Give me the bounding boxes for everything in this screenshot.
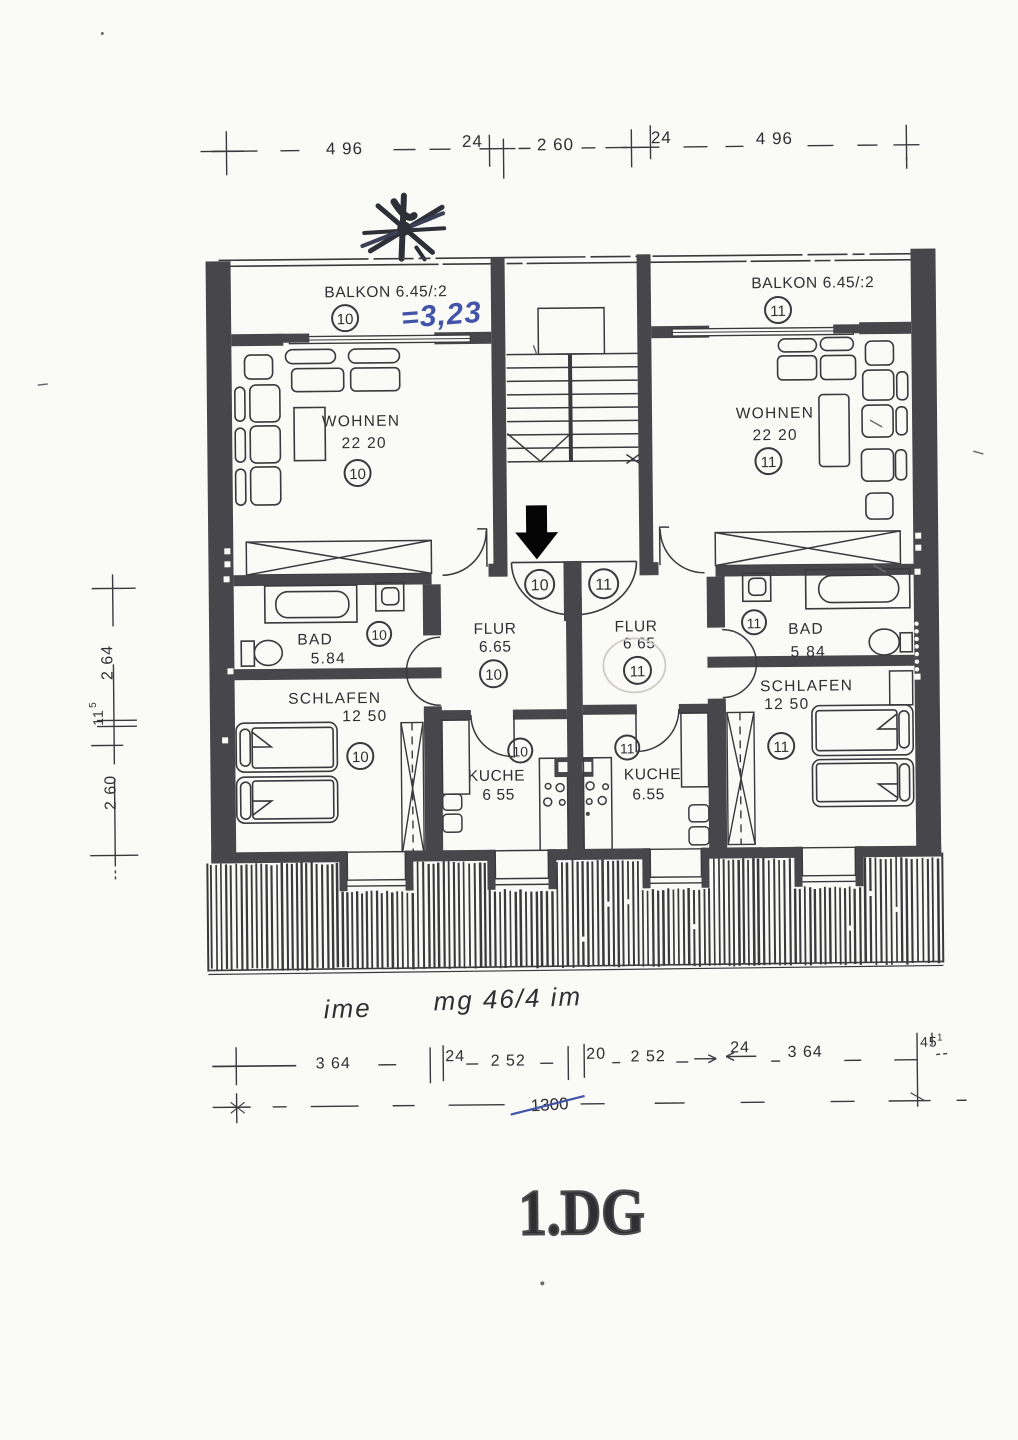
svg-text:mg 46/4 im: mg 46/4 im	[433, 981, 583, 1016]
svg-text:SCHLAFEN: SCHLAFEN	[760, 677, 853, 695]
svg-text:10: 10	[352, 749, 369, 766]
svg-text:SCHLAFEN: SCHLAFEN	[288, 690, 381, 708]
svg-text:BALKON 6.45/:2: BALKON 6.45/:2	[324, 283, 447, 301]
svg-text:FLUR: FLUR	[615, 618, 658, 635]
svg-text:2 64: 2 64	[99, 645, 116, 680]
svg-text:FLUR: FLUR	[474, 621, 517, 638]
svg-text:ime: ime	[323, 993, 372, 1025]
svg-text:2 60: 2 60	[537, 135, 574, 154]
svg-text:10: 10	[371, 627, 387, 643]
svg-text:11: 11	[747, 615, 762, 631]
svg-text:=3,23: =3,23	[400, 296, 483, 335]
svg-text:10: 10	[485, 667, 502, 684]
svg-text:22 20: 22 20	[753, 427, 798, 444]
svg-text:5: 5	[88, 701, 99, 708]
svg-text:2 52: 2 52	[491, 1052, 526, 1069]
svg-text:24: 24	[462, 132, 483, 151]
svg-text:10: 10	[531, 577, 549, 594]
svg-text:6.65: 6.65	[479, 639, 512, 656]
svg-text:11: 11	[90, 709, 106, 726]
svg-text:KUCHE: KUCHE	[624, 766, 681, 784]
svg-text:11: 11	[595, 577, 612, 594]
svg-text:1: 1	[937, 1032, 944, 1043]
svg-text:WOHNEN: WOHNEN	[322, 413, 401, 431]
svg-text:24: 24	[651, 128, 672, 147]
svg-text:3 64: 3 64	[788, 1044, 823, 1061]
svg-text:6.55: 6.55	[632, 786, 665, 803]
svg-text:12 50: 12 50	[764, 696, 809, 713]
svg-text:11: 11	[770, 303, 786, 320]
svg-text:4 96: 4 96	[756, 129, 793, 148]
svg-text:3 64: 3 64	[316, 1055, 351, 1072]
svg-text:6 65: 6 65	[623, 635, 656, 652]
svg-text:2 60: 2 60	[102, 775, 119, 810]
svg-text:22 20: 22 20	[342, 435, 387, 452]
svg-text:1.DG: 1.DG	[518, 1176, 645, 1249]
svg-text:11: 11	[620, 740, 635, 756]
svg-text:11: 11	[761, 454, 777, 471]
svg-text:6 55: 6 55	[482, 787, 515, 804]
svg-text:24: 24	[445, 1048, 465, 1065]
svg-text:12 50: 12 50	[342, 708, 387, 725]
svg-text:BAD: BAD	[297, 631, 333, 648]
svg-text:45: 45	[920, 1034, 938, 1050]
svg-text:10: 10	[349, 466, 366, 483]
svg-text:11: 11	[773, 739, 789, 756]
svg-text:11: 11	[630, 663, 646, 680]
svg-text:20: 20	[586, 1046, 606, 1063]
svg-text:2 52: 2 52	[631, 1048, 666, 1065]
svg-text:5 84: 5 84	[791, 644, 827, 661]
svg-text:5.84: 5.84	[311, 650, 347, 667]
svg-text:4 96: 4 96	[326, 139, 363, 158]
svg-text:10: 10	[337, 311, 354, 328]
svg-text:10: 10	[512, 743, 528, 759]
svg-text:KUCHE: KUCHE	[468, 767, 525, 785]
svg-text:BALKON 6.45/:2: BALKON 6.45/:2	[751, 274, 874, 292]
svg-text:WOHNEN: WOHNEN	[736, 405, 815, 423]
svg-text:BAD: BAD	[788, 621, 824, 638]
svg-text:24: 24	[730, 1039, 750, 1056]
